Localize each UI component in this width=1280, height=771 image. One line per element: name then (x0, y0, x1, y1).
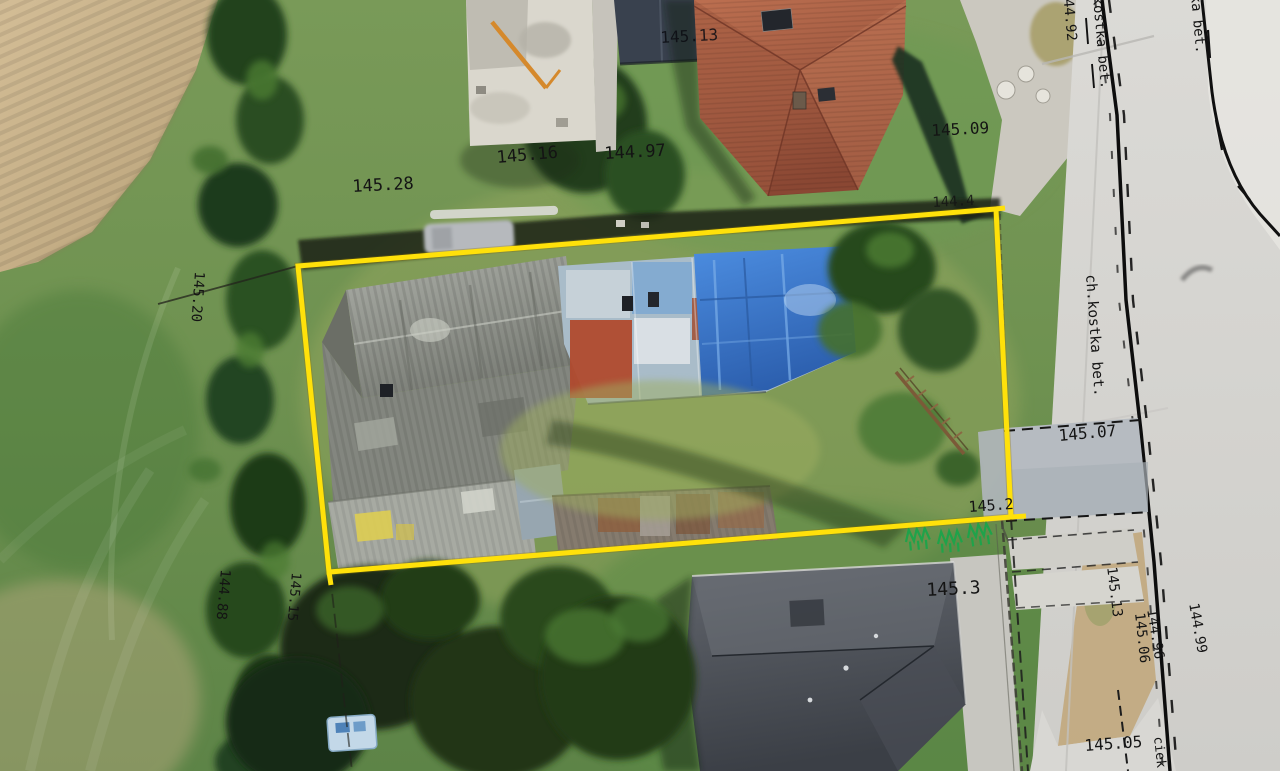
spot-height-label: 145.3 (926, 579, 981, 600)
spot-height-label: 145.09 (931, 120, 990, 139)
surface-type-label: ciek (1151, 736, 1167, 768)
spot-height-label: 144.88 (214, 569, 232, 621)
spot-height-label: 145.2 (968, 497, 1014, 515)
blue-object (327, 714, 377, 751)
chimney (380, 384, 393, 397)
spot-height-label: 145.15 (284, 572, 302, 622)
spot-height-label: 145.05 (1084, 734, 1143, 754)
spot-height-label: 144.92 (1060, 0, 1078, 42)
aerial-photo-layer (0, 0, 1280, 771)
spot-height-label: 145.20 (189, 271, 206, 322)
aerial-survey-map: 145.28 145.16 144.97 145.13 145.09 144.4… (0, 0, 1280, 771)
surface-type-label: ka bet. (1188, 0, 1207, 54)
spot-height-label: 145.28 (352, 176, 414, 196)
spot-height-label: 144.97 (604, 143, 666, 163)
spot-height-label: 145.13 (660, 27, 719, 46)
spot-height-label: 144.4 (932, 194, 975, 210)
